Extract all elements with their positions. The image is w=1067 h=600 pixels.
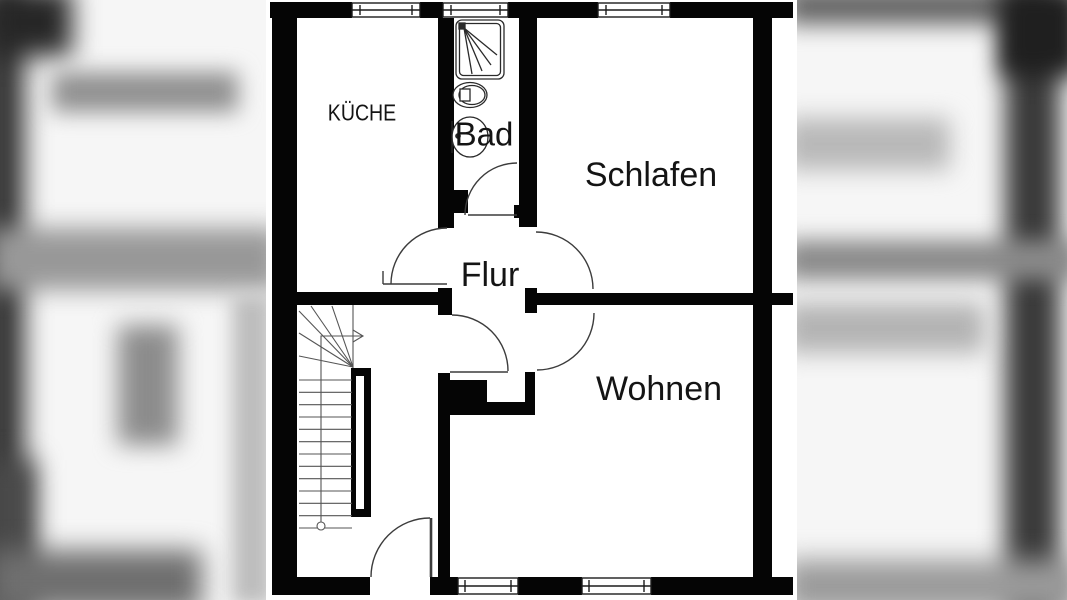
wall-bottom	[430, 577, 458, 595]
wall-schlafen-wohnen	[537, 293, 793, 305]
walls	[270, 2, 793, 595]
door-jamb	[525, 288, 537, 313]
door-arc-entry	[371, 518, 430, 577]
wall-flur-stairs	[272, 292, 438, 305]
room-label-flur: Flur	[461, 258, 520, 292]
toilet-icon	[453, 83, 487, 108]
wall-bad-schlafen	[519, 18, 537, 227]
door-arc-flur	[452, 315, 508, 371]
wall-top	[420, 2, 443, 18]
stair-walk-start	[317, 522, 325, 530]
window-wohnen-2	[582, 578, 651, 594]
room-label-schlafen: Schlafen	[585, 158, 717, 192]
winder-step	[299, 311, 353, 367]
window-schlafen	[598, 3, 670, 17]
wall-bottom	[651, 577, 793, 595]
wall-bottom	[518, 577, 582, 595]
door-leaf-bad	[514, 205, 522, 218]
room-label-bad: Bad	[455, 118, 514, 151]
chimney	[450, 380, 487, 415]
shower-icon	[456, 20, 504, 79]
floor-plan-image: KÜCHE Bad Schlafen Flur Wohnen	[0, 0, 1067, 600]
door-arc-wohnen	[537, 313, 594, 370]
window-kueche	[352, 3, 420, 17]
chimney	[487, 402, 525, 415]
wall-bottom	[272, 577, 370, 595]
doors	[371, 163, 594, 577]
stair-railing-slot	[356, 376, 364, 509]
door-arc-kueche	[391, 228, 447, 284]
wall-top	[508, 2, 598, 18]
window-wohnen-1	[458, 578, 518, 594]
floor-plan-drawing	[0, 0, 1067, 600]
door-arc-schlafen	[536, 232, 593, 289]
room-label-wohnen: Wohnen	[596, 372, 722, 406]
window-bad	[443, 3, 508, 17]
room-label-kueche: KÜCHE	[328, 102, 396, 125]
chimney	[525, 372, 535, 415]
wall-top	[670, 2, 793, 18]
door-arc-bad	[465, 163, 517, 215]
wall-stairs-wohnen	[438, 373, 450, 577]
door-jamb	[438, 288, 452, 315]
